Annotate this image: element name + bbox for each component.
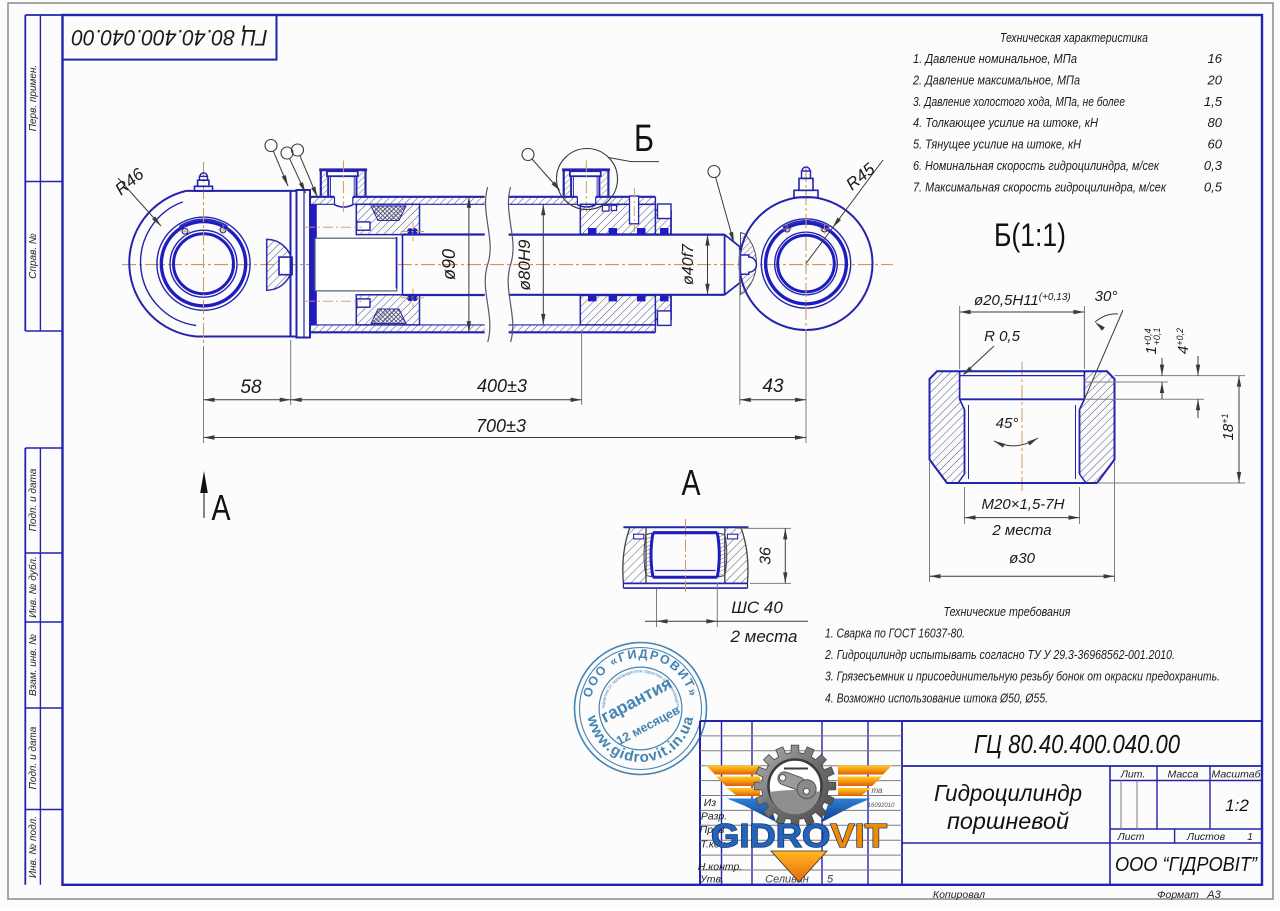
- svg-text:ø40f7: ø40f7: [680, 243, 697, 285]
- svg-text:700±3: 700±3: [476, 416, 526, 436]
- svg-text:1. Сварка по ГОСТ 16037-80.: 1. Сварка по ГОСТ 16037-80.: [825, 627, 965, 641]
- svg-text:16092010: 16092010: [868, 803, 895, 809]
- svg-text:Масса: Масса: [1167, 769, 1198, 781]
- svg-text:ШС 40: ШС 40: [731, 598, 783, 617]
- svg-text:2 места: 2 места: [729, 627, 797, 646]
- svg-text:Из: Из: [704, 797, 717, 809]
- svg-text:1:2: 1:2: [1225, 796, 1249, 815]
- svg-text:Утв.: Утв.: [699, 874, 724, 886]
- svg-text:Подп. и дата: Подп. и дата: [28, 468, 39, 531]
- svg-text:та: та: [871, 786, 883, 795]
- svg-text:2. Гидроцилиндр испытывать сог: 2. Гидроцилиндр испытывать согласно ТУ У…: [824, 648, 1175, 662]
- svg-text:А3: А3: [1206, 889, 1221, 901]
- svg-text:Гидроцилиндр: Гидроцилиндр: [934, 780, 1082, 806]
- svg-text:М20×1,5-7Н: М20×1,5-7Н: [982, 496, 1065, 513]
- svg-text:5: 5: [827, 874, 834, 886]
- svg-text:Инв. № дубл.: Инв. № дубл.: [27, 556, 39, 618]
- svg-text:Н.контр.: Н.контр.: [698, 861, 742, 873]
- svg-text:30°: 30°: [1095, 288, 1118, 305]
- svg-text:45°: 45°: [996, 415, 1019, 432]
- svg-text:1. Давление номинальное, МПа: 1. Давление номинальное, МПа: [913, 51, 1077, 66]
- svg-text:ø30: ø30: [1009, 550, 1036, 567]
- svg-text:Перв. примен.: Перв. примен.: [28, 65, 39, 131]
- svg-text:поршневой: поршневой: [947, 808, 1069, 834]
- svg-text:1,5: 1,5: [1204, 94, 1223, 109]
- svg-text:58: 58: [240, 377, 262, 398]
- svg-text:ø90: ø90: [439, 249, 459, 280]
- svg-text:6. Номинальная скорость гидроц: 6. Номинальная скорость гидроцилиндра, м…: [913, 158, 1160, 173]
- svg-text:0,3: 0,3: [1204, 158, 1223, 173]
- svg-text:Б: Б: [634, 118, 654, 160]
- svg-text:Взам. инв. №: Взам. инв. №: [28, 634, 39, 696]
- svg-text:Техническая характеристика: Техническая характеристика: [1000, 30, 1148, 45]
- svg-text:2 места: 2 места: [991, 522, 1051, 539]
- svg-text:80: 80: [1208, 115, 1223, 130]
- svg-text:2. Давление максимальное, МПа: 2. Давление максимальное, МПа: [912, 72, 1080, 87]
- svg-text:Б(1:1): Б(1:1): [994, 217, 1066, 253]
- svg-text:60: 60: [1208, 137, 1223, 152]
- svg-text:1: 1: [1247, 831, 1253, 843]
- svg-text:Формат: Формат: [1157, 889, 1199, 901]
- svg-text:5. Тянущее усилие на штоке, кН: 5. Тянущее усилие на штоке, кН: [913, 137, 1082, 152]
- svg-text:7. Максимальная скорость гидро: 7. Максимальная скорость гидроцилиндра, …: [913, 179, 1167, 194]
- svg-text:Лист: Лист: [1116, 831, 1144, 843]
- svg-text:1+0,4+0,1: 1+0,4+0,1: [1143, 328, 1162, 355]
- svg-text:20: 20: [1207, 72, 1223, 87]
- svg-text:43: 43: [762, 376, 784, 397]
- svg-text:R 0,5: R 0,5: [984, 328, 1021, 345]
- svg-text:А: А: [212, 487, 231, 528]
- svg-text:ООО “ГІДРОВІТ”: ООО “ГІДРОВІТ”: [1115, 854, 1258, 876]
- svg-text:Технические требования: Технические требования: [944, 604, 1071, 619]
- svg-text:Лит.: Лит.: [1120, 769, 1146, 781]
- svg-text:36: 36: [758, 547, 775, 565]
- svg-text:GIDROVIT: GIDROVIT: [711, 817, 887, 854]
- svg-text:3. Грязесъемник и присоедините: 3. Грязесъемник и присоединительную резь…: [825, 670, 1220, 684]
- svg-text:ГЦ 80.40.400.040.00: ГЦ 80.40.400.040.00: [71, 25, 268, 50]
- svg-text:ø80Н9: ø80Н9: [515, 239, 534, 291]
- svg-text:0,5: 0,5: [1204, 179, 1223, 194]
- svg-text:Листов: Листов: [1186, 831, 1226, 843]
- svg-text:4. Толкающее усилие на штоке,: 4. Толкающее усилие на штоке, кН: [913, 115, 1099, 130]
- svg-text:ГЦ 80.40.400.040.00: ГЦ 80.40.400.040.00: [974, 729, 1180, 759]
- svg-text:А: А: [682, 462, 701, 503]
- svg-text:Справ. №: Справ. №: [28, 233, 39, 279]
- svg-text:4. Возможно использование шток: 4. Возможно использование штока Ø50, Ø55…: [825, 691, 1048, 705]
- svg-text:16: 16: [1208, 51, 1223, 66]
- svg-text:3. Давление холостого хода, МП: 3. Давление холостого хода, МПа, не боле…: [913, 94, 1125, 109]
- svg-text:Подп. и дата: Подп. и дата: [28, 726, 39, 789]
- svg-text:Копировал: Копировал: [933, 889, 985, 901]
- svg-text:Масштаб: Масштаб: [1211, 769, 1261, 781]
- svg-text:400±3: 400±3: [477, 376, 527, 396]
- svg-text:Инв. № подл.: Инв. № подл.: [28, 816, 39, 878]
